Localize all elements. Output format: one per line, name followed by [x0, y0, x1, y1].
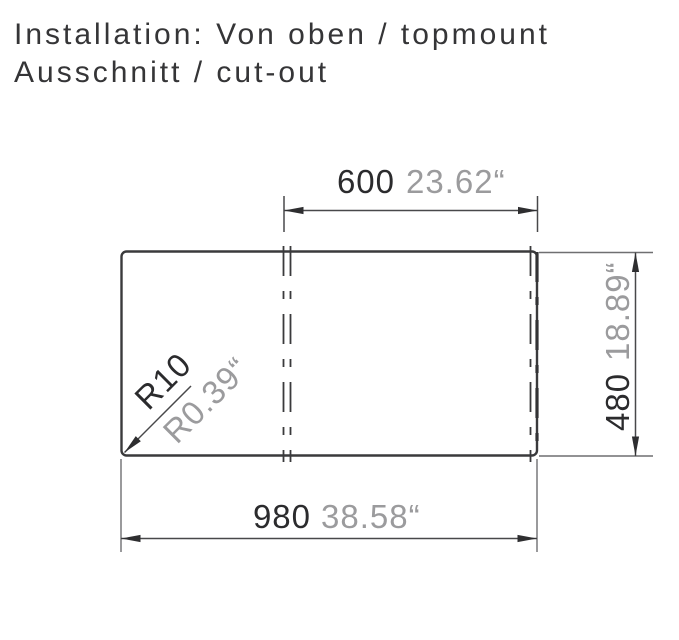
centerline-group-middle [284, 246, 291, 462]
dimension-top-value-inch: 23.62“ [406, 163, 506, 200]
dimension-right-value-inch: 18.89“ [599, 261, 636, 361]
radius-callout: R10 R0.39“ [125, 345, 257, 452]
dimension-bottom: 980 38.58“ [121, 459, 537, 552]
cutout-technical-drawing: 600 23.62“ 480 18.89“ 980 38.58“ R10 R0.… [0, 0, 679, 640]
dimension-bottom-value-mm: 980 [253, 498, 311, 535]
dimension-right: 480 18.89“ [539, 253, 653, 457]
dimension-top: 600 23.62“ [284, 163, 538, 232]
installation-drawing-page: Installation: Von oben / topmount Aussch… [0, 0, 679, 640]
dimension-top-value-mm: 600 [337, 163, 395, 200]
dimension-bottom-value-inch: 38.58“ [321, 498, 421, 535]
dimension-right-value-mm: 480 [599, 373, 636, 431]
